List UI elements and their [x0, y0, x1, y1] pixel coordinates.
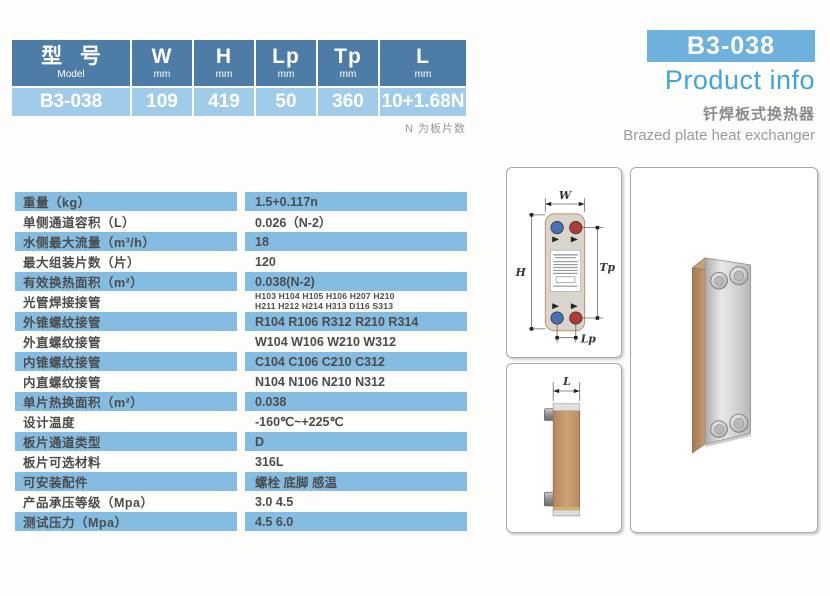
- product-subtitle-en: Brazed plate heat exchanger: [555, 127, 815, 144]
- model-column-label: W: [152, 46, 173, 67]
- spec-row-value: -160℃~+225℃: [245, 412, 467, 431]
- spec-row-value: 螺栓 底脚 感温: [245, 472, 467, 491]
- photo-side-face: [692, 258, 705, 453]
- model-column: Lmm10+1.68N: [380, 40, 466, 116]
- side-view-diagram-panel: L: [506, 363, 622, 533]
- spec-row-label: 可安装配件: [15, 472, 237, 491]
- dim-label-w: W: [559, 189, 573, 202]
- product-header: B3-038 Product info 钎焊板式换热器 Brazed plate…: [555, 30, 815, 144]
- spec-table: 重量（kg）1.5+0.117n单侧通道容积（L）0.026（N-2）水侧最大流…: [15, 192, 467, 532]
- dim-label-lp: Lp: [580, 333, 597, 346]
- model-column-value: 10+1.68N: [380, 88, 466, 116]
- spec-row-value: 1.5+0.117n: [245, 192, 467, 211]
- spec-row-label: 水侧最大流量（m³/h）: [15, 232, 237, 251]
- model-column-label: L: [416, 46, 430, 67]
- product-info-page: 型 号ModelB3-038Wmm109Hmm419Lpmm50Tpmm360L…: [0, 0, 830, 596]
- spec-row-label: 设计温度: [15, 412, 237, 431]
- spec-row-label: 光管焊接接管: [15, 292, 237, 311]
- model-table-columns: 型 号ModelB3-038Wmm109Hmm419Lpmm50Tpmm360L…: [12, 40, 466, 116]
- model-column-unit: mm: [340, 70, 357, 80]
- side-nozzle-top: [544, 409, 554, 421]
- model-spec-table: 型 号ModelB3-038Wmm109Hmm419Lpmm50Tpmm360L…: [12, 40, 466, 136]
- model-column-label: 型 号: [35, 46, 107, 67]
- spec-row-value: 316L: [245, 452, 467, 471]
- spec-row: 板片可选材料316L: [15, 452, 467, 471]
- model-column-header: Lpmm: [256, 40, 316, 86]
- port-bottom-left-blue: [551, 312, 563, 324]
- spec-row-label: 单片热换面积（m²）: [15, 392, 237, 411]
- spec-row: 产品承压等级（Mpa）3.0 4.5: [15, 492, 467, 511]
- dim-label-tp: Tp: [599, 261, 615, 274]
- spec-row-label: 板片可选材料: [15, 452, 237, 471]
- port-top-right-red: [570, 221, 582, 233]
- port-top-left-blue: [551, 221, 563, 233]
- spec-row: 单片热换面积（m²）0.038: [15, 392, 467, 411]
- product-photo-panel: [630, 167, 818, 533]
- spec-row-label: 板片通道类型: [15, 432, 237, 451]
- model-column-unit: Model: [57, 70, 84, 80]
- spec-row: 外锥螺纹接管R104 R106 R312 R210 R314: [15, 312, 467, 331]
- product-photo: [631, 168, 817, 532]
- model-column-label: H: [216, 46, 232, 67]
- spec-row: 外直螺纹接管W104 W106 W210 W312: [15, 332, 467, 351]
- dim-label-l: L: [562, 375, 571, 388]
- product-subtitle-cn: 钎焊板式换热器: [555, 103, 815, 124]
- model-column-header: Lmm: [380, 40, 466, 86]
- spec-row: 设计温度-160℃~+225℃: [15, 412, 467, 431]
- spec-row-value: 4.5 6.0: [245, 512, 467, 531]
- spec-row-label: 有效换热面积（m²）: [15, 272, 237, 291]
- model-column-value: 50: [256, 88, 316, 116]
- spec-row-label: 最大组装片数（片）: [15, 252, 237, 271]
- spec-row-value: 120: [245, 252, 467, 271]
- spec-row-value: C104 C106 C210 C312: [245, 352, 467, 371]
- model-column-header: Tpmm: [318, 40, 378, 86]
- model-column: Lpmm50: [256, 40, 316, 116]
- side-view-diagram: L: [507, 364, 621, 532]
- spec-row: 单侧通道容积（L）0.026（N-2）: [15, 212, 467, 231]
- model-column-label: Lp: [272, 46, 300, 67]
- spec-row: 内直螺纹接管N104 N106 N210 N312: [15, 372, 467, 391]
- spec-row: 最大组装片数（片）120: [15, 252, 467, 271]
- spec-row-value: 18: [245, 232, 467, 251]
- side-nozzle-bottom: [544, 492, 554, 506]
- side-body: [553, 404, 580, 516]
- model-column: Hmm419: [194, 40, 254, 116]
- model-column: 型 号ModelB3-038: [12, 40, 130, 116]
- model-column-label: Tp: [334, 46, 362, 67]
- model-column-value: 419: [194, 88, 254, 116]
- spec-row-label: 测试压力（Mpa）: [15, 512, 237, 531]
- spec-row: 可安装配件螺栓 底脚 感温: [15, 472, 467, 491]
- model-badge: B3-038: [647, 30, 815, 62]
- spec-row-value: W104 W106 W210 W312: [245, 332, 467, 351]
- spec-row-label: 外直螺纹接管: [15, 332, 237, 351]
- model-column-header: Hmm: [194, 40, 254, 86]
- front-view-diagram: W H Tp Lp: [507, 168, 621, 357]
- spec-row-label: 外锥螺纹接管: [15, 312, 237, 331]
- spec-row-value: D: [245, 432, 467, 451]
- spec-row: 板片通道类型D: [15, 432, 467, 451]
- dim-label-h: H: [515, 266, 527, 279]
- spec-row-label: 内锥螺纹接管: [15, 352, 237, 371]
- model-column: Tpmm360: [318, 40, 378, 116]
- spec-row: 内锥螺纹接管C104 C106 C210 C312: [15, 352, 467, 371]
- spec-row-value: 3.0 4.5: [245, 492, 467, 511]
- spec-row-value: 0.026（N-2）: [245, 212, 467, 231]
- spec-row-label: 单侧通道容积（L）: [15, 212, 237, 231]
- model-column-unit: mm: [216, 70, 233, 80]
- spec-row-value: H103 H104 H105 H106 H207 H210 H211 H212 …: [245, 292, 467, 311]
- spec-row-value: 0.038: [245, 392, 467, 411]
- model-column-unit: mm: [278, 70, 295, 80]
- spec-row-value: 0.038(N-2): [245, 272, 467, 291]
- front-view-diagram-panel: W H Tp Lp: [506, 167, 622, 358]
- spec-row: 水侧最大流量（m³/h）18: [15, 232, 467, 251]
- spec-row-value: N104 N106 N210 N312: [245, 372, 467, 391]
- model-column-value: 109: [132, 88, 192, 116]
- model-column-value: 360: [318, 88, 378, 116]
- plate-count-note: N 为板片数: [12, 120, 466, 136]
- spec-row-label: 产品承压等级（Mpa）: [15, 492, 237, 511]
- spec-row: 重量（kg）1.5+0.117n: [15, 192, 467, 211]
- model-column-unit: mm: [415, 70, 432, 80]
- model-column-header: Wmm: [132, 40, 192, 86]
- spec-row: 有效换热面积（m²）0.038(N-2): [15, 272, 467, 291]
- model-column: Wmm109: [132, 40, 192, 116]
- spec-row: 测试压力（Mpa）4.5 6.0: [15, 512, 467, 531]
- port-bottom-right-red: [570, 312, 582, 324]
- spec-row-label: 重量（kg）: [15, 192, 237, 211]
- model-column-header: 型 号Model: [12, 40, 130, 86]
- product-title: Product info: [555, 65, 815, 96]
- spec-row: 光管焊接接管H103 H104 H105 H106 H207 H210 H211…: [15, 292, 467, 311]
- spec-row-label: 内直螺纹接管: [15, 372, 237, 391]
- spec-row-value: R104 R106 R312 R210 R314: [245, 312, 467, 331]
- model-column-value: B3-038: [12, 88, 130, 116]
- model-column-unit: mm: [154, 70, 171, 80]
